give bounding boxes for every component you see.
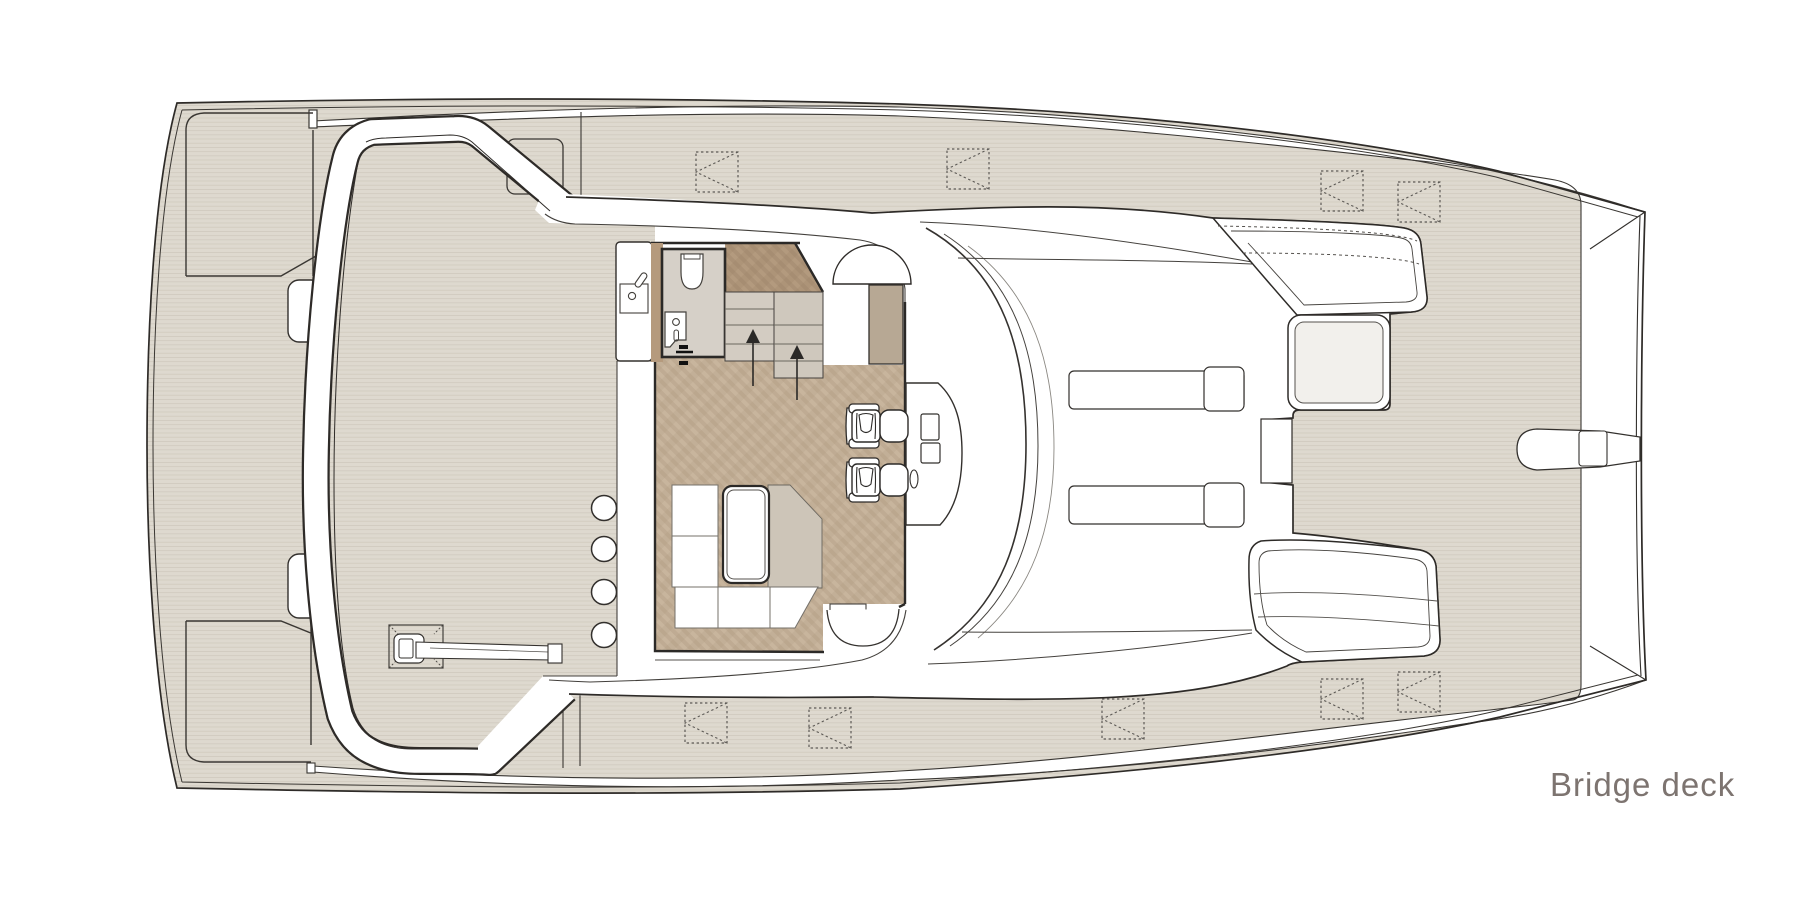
svg-text:Bridge deck: Bridge deck — [1550, 766, 1735, 803]
